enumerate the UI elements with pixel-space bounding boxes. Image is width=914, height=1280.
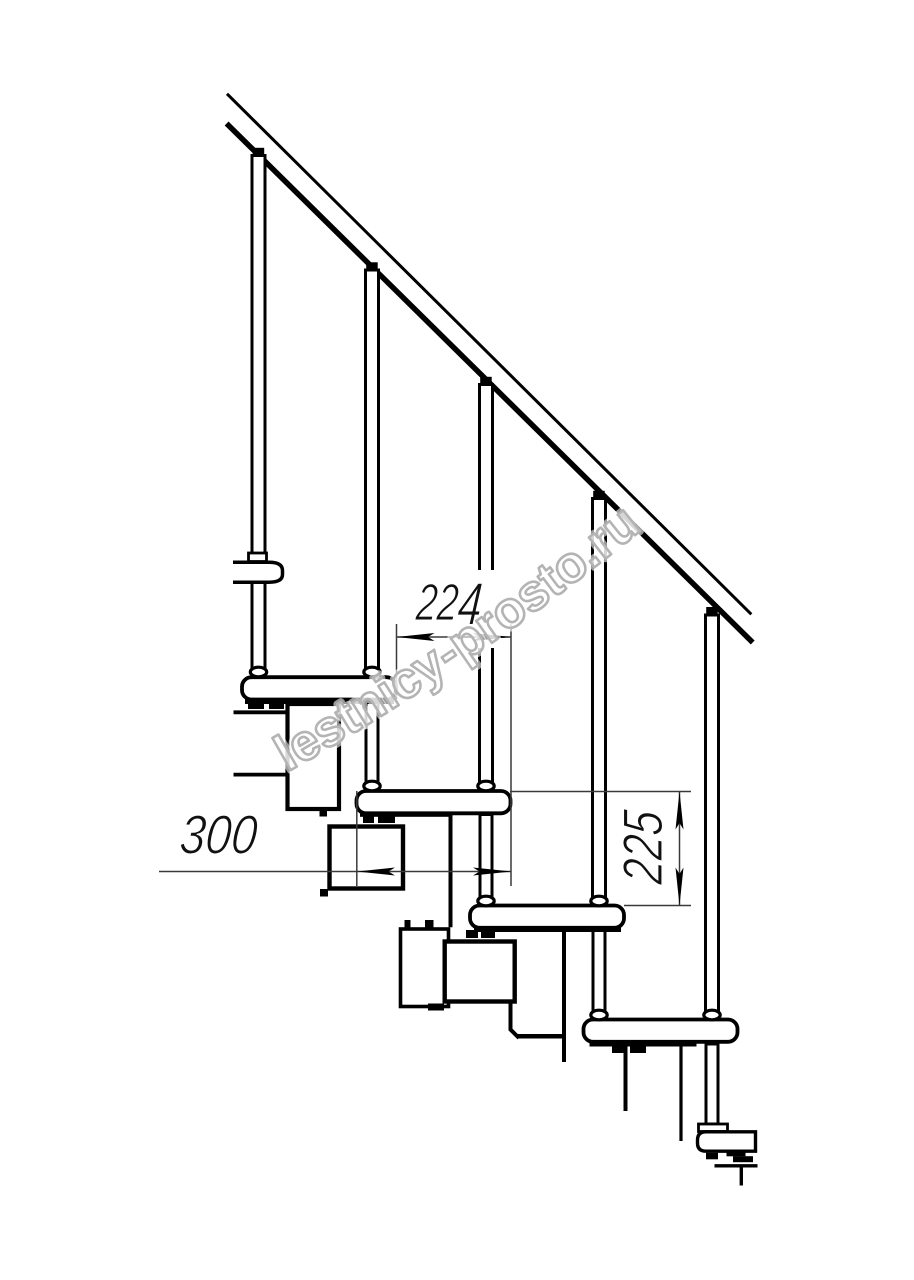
svg-text:224: 224 bbox=[413, 572, 485, 638]
svg-text:225: 225 bbox=[611, 807, 674, 887]
svg-text:300: 300 bbox=[177, 804, 259, 866]
